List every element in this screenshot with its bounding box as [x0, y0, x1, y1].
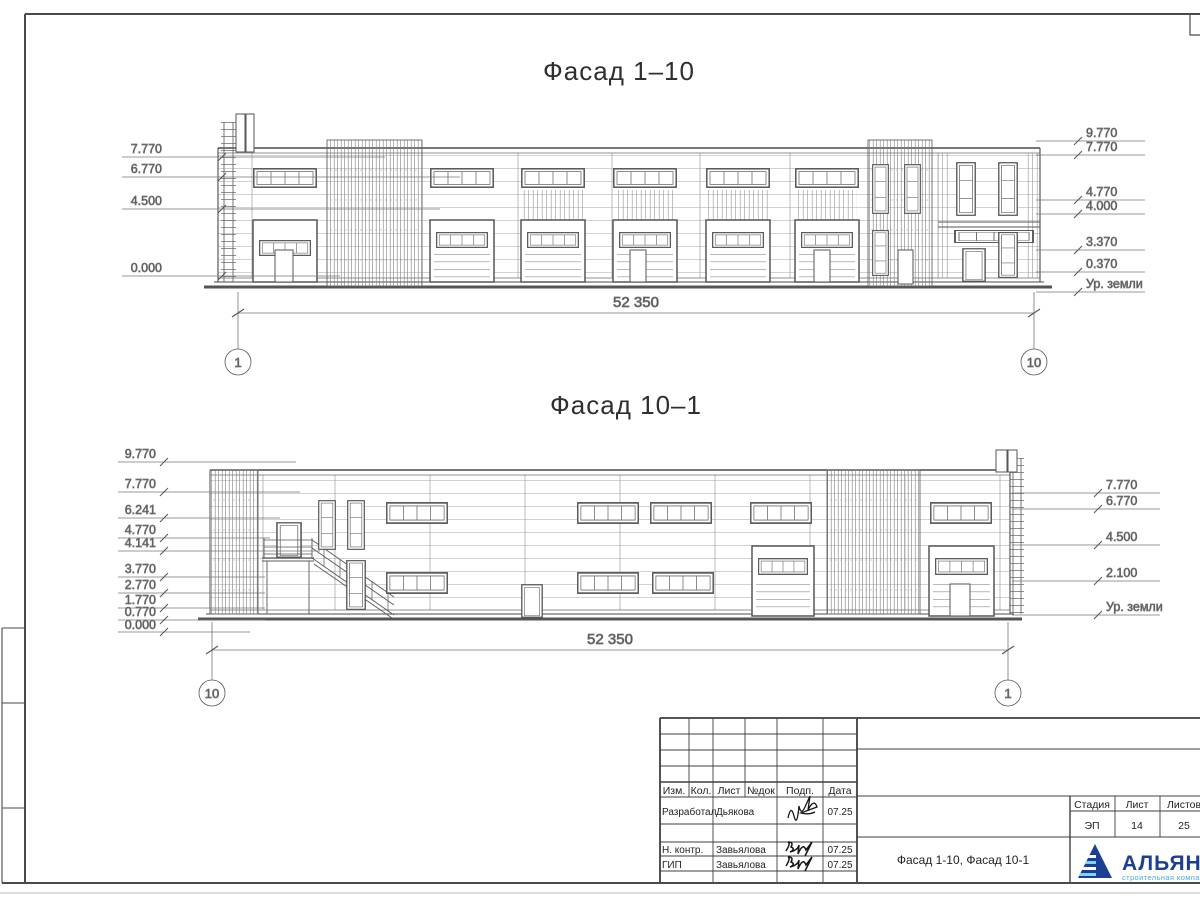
stamp-row-gip: ГИП Завьялова 07.25 — [662, 857, 853, 871]
sheet-frame — [0, 14, 1200, 893]
f1-mark-9770: 9.770 — [1086, 126, 1117, 140]
f2-mark-4770: 4.770 — [125, 523, 156, 537]
roof-stack-left — [236, 114, 254, 152]
stamp-row-ncontrol: Н. контр. Завьялова 07.25 — [662, 842, 853, 856]
sheets-value: 25 — [1178, 820, 1190, 832]
facade1-span-dimension: 52 350 1 10 — [225, 292, 1047, 375]
sheet-label: Лист — [1126, 799, 1149, 811]
sheets-label: Листов — [1167, 799, 1200, 811]
f2-gate-2 — [929, 546, 994, 616]
doc-title: Фасад 1-10, Фасад 10-1 — [897, 853, 1030, 867]
col-podp: Подп. — [786, 785, 814, 797]
facade-10-1-view: Фасад 10–1 — [118, 390, 1163, 706]
col-ndok: №док — [747, 785, 775, 797]
facade2-building — [198, 450, 1024, 619]
signature — [786, 842, 812, 856]
f2-mark-2100r: 2.100 — [1106, 566, 1137, 580]
frame-corner-box — [1190, 14, 1200, 35]
f2-ground-label: Ур. земли — [1106, 600, 1163, 614]
f2-mark-7770: 7.770 — [125, 477, 156, 491]
signature — [788, 796, 817, 820]
f2-span-text: 52 350 — [587, 631, 633, 648]
gate-5 — [706, 220, 770, 282]
f2-mark-0000: 0.000 — [125, 618, 156, 632]
gate-4 — [613, 220, 677, 282]
row-role: Разработал — [662, 806, 717, 818]
col-kol: Кол. — [691, 785, 712, 797]
row-date: 07.25 — [827, 845, 852, 856]
col-izm: Изм. — [663, 785, 686, 797]
f1-mark-0000: 0.000 — [131, 261, 162, 275]
fire-ladder-left — [221, 122, 236, 282]
f1-mark-3370: 3.370 — [1086, 235, 1117, 249]
louver-panel-2 — [868, 140, 932, 286]
f2-gate-1 — [752, 546, 814, 616]
f2-mark-3770: 3.770 — [125, 562, 156, 576]
f2-mark-6770r: 6.770 — [1106, 494, 1137, 508]
fire-ladder-right — [1010, 458, 1024, 614]
f2-axis-left: 10 — [205, 686, 219, 701]
f1-mark-7770r: 7.770 — [1086, 140, 1117, 154]
sheet-value: 14 — [1131, 820, 1143, 832]
row-role: ГИП — [662, 860, 682, 871]
facade1-building — [204, 114, 1052, 287]
facade2-span-dimension: 52 350 10 1 — [199, 622, 1021, 706]
f1-ground-label: Ур. земли — [1086, 277, 1143, 291]
f2-mark-4500r: 4.500 — [1106, 530, 1137, 544]
gate-1 — [253, 220, 317, 282]
col-list: Лист — [718, 785, 741, 797]
drawing-canvas: Фасад 1–10 — [0, 0, 1200, 900]
row-name: Дьякова — [716, 807, 755, 818]
f2-axis-right: 1 — [1004, 686, 1011, 701]
gate-6 — [795, 220, 859, 282]
gate-2 — [430, 220, 494, 282]
f1-mark-7770: 7.770 — [131, 142, 162, 156]
row-name: Завьялова — [716, 860, 766, 871]
facade1-title: Фасад 1–10 — [543, 56, 695, 86]
f1-mark-4000: 4.000 — [1086, 199, 1117, 213]
f2-mark-0770: 0.770 — [125, 605, 156, 619]
company-logo: АЛЬЯНС строительная компания — [1078, 844, 1200, 882]
col-data: Дата — [828, 785, 851, 797]
gate-3 — [521, 220, 585, 282]
facade-1-10-view: Фасад 1–10 — [122, 56, 1145, 375]
row-date: 07.25 — [827, 860, 852, 871]
row-name: Завьялова — [716, 845, 766, 856]
stage-label: Стадия — [1074, 799, 1110, 811]
f1-mark-4500: 4.500 — [131, 194, 162, 208]
logo-subtitle: строительная компания — [1122, 873, 1200, 882]
roof-stack-right — [996, 450, 1017, 472]
logo-text: АЛЬЯНС — [1122, 852, 1200, 875]
f2-mark-7770r: 7.770 — [1106, 478, 1137, 492]
entry-door — [522, 585, 542, 617]
f2-mark-2770: 2.770 — [125, 578, 156, 592]
facade2-title: Фасад 10–1 — [550, 390, 702, 420]
stage-value: ЭП — [1084, 820, 1099, 832]
f1-mark-0370: 0.370 — [1086, 257, 1117, 271]
f1-axis-left: 1 — [234, 355, 241, 370]
title-block: Изм. Кол. Лист №док Подп. Дата Разработа… — [660, 718, 1200, 882]
row-role: Н. контр. — [662, 845, 703, 856]
f1-mark-6770: 6.770 — [131, 162, 162, 176]
louver-panel-left — [210, 470, 258, 614]
signature — [786, 857, 812, 871]
f1-span-text: 52 350 — [613, 294, 659, 311]
f2-mark-9770: 9.770 — [125, 447, 156, 461]
f1-mark-4770: 4.770 — [1086, 185, 1117, 199]
frame-left-margin-cells — [2, 628, 25, 883]
facade1-right-marks: 9.770 7.770 4.770 4.000 3.370 0.370 Ур. … — [1036, 126, 1145, 296]
facade2-right-marks: 7.770 6.770 4.500 2.100 Ур. земли — [1012, 478, 1163, 619]
row-date: 07.25 — [827, 807, 852, 818]
louver-panel-1 — [327, 140, 422, 286]
louver-panel-big — [827, 470, 920, 614]
drawing-sheet: Фасад 1–10 — [0, 0, 1200, 900]
stamp-row-developer: Разработал Дьякова 07.25 — [662, 796, 853, 820]
f2-mark-6241: 6.241 — [125, 503, 156, 517]
f2-mark-4141: 4.141 — [125, 536, 156, 550]
f1-axis-right: 10 — [1027, 355, 1041, 370]
